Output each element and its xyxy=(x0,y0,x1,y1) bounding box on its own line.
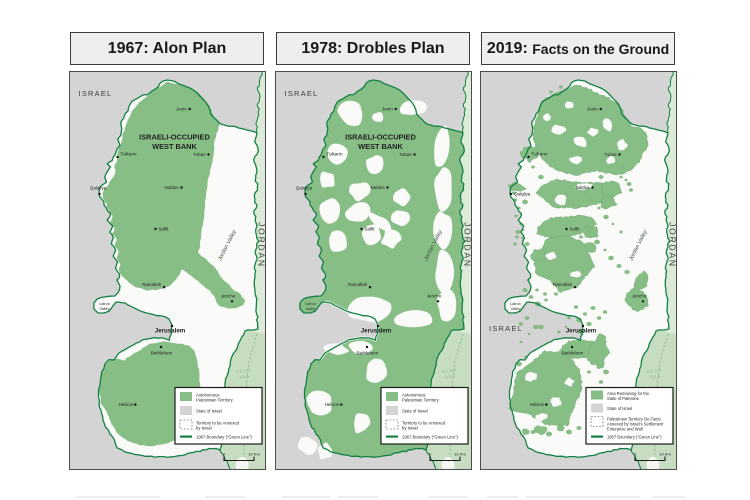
svg-text:Jenin: Jenin xyxy=(382,107,393,112)
svg-text:Latrun: Latrun xyxy=(99,302,110,306)
svg-text:Hebron: Hebron xyxy=(530,402,545,407)
svg-text:Nablus: Nablus xyxy=(165,185,180,190)
svg-text:Ramallah: Ramallah xyxy=(348,282,368,287)
svg-text:ISRAEL: ISRAEL xyxy=(489,324,523,333)
svg-text:Valley: Valley xyxy=(99,307,109,311)
svg-text:Tulkarm: Tulkarm xyxy=(120,151,136,156)
svg-text:Ramallah: Ramallah xyxy=(553,282,573,287)
svg-text:Jericho: Jericho xyxy=(221,293,236,298)
svg-text:Jerusalem: Jerusalem xyxy=(155,328,186,335)
svg-text:Tubas: Tubas xyxy=(399,152,412,157)
svg-text:ISRAEL: ISRAEL xyxy=(285,89,319,98)
svg-text:JORDAN: JORDAN xyxy=(257,222,266,268)
svg-text:Jenin: Jenin xyxy=(176,107,187,112)
svg-text:Tulkarm: Tulkarm xyxy=(531,151,547,156)
svg-text:Valley: Valley xyxy=(510,307,520,311)
svg-text:Jerusalem: Jerusalem xyxy=(566,328,597,335)
svg-text:State of Israel: State of Israel xyxy=(402,409,428,414)
svg-text:Hebron: Hebron xyxy=(119,402,134,407)
svg-text:10 Km: 10 Km xyxy=(454,451,466,456)
svg-text:Salfit: Salfit xyxy=(569,227,580,232)
svg-text:10 Km: 10 Km xyxy=(248,451,260,456)
svg-text:Enterprise and Wall: Enterprise and Wall xyxy=(607,426,643,431)
svg-text:WEST BANK: WEST BANK xyxy=(358,142,403,151)
svg-text:ISRAELI-OCCUPIED: ISRAELI-OCCUPIED xyxy=(345,133,416,142)
svg-text:Bethlehem: Bethlehem xyxy=(562,350,584,355)
svg-text:Bethlehem: Bethlehem xyxy=(151,350,173,355)
svg-text:Jericho: Jericho xyxy=(427,293,442,298)
svg-text:Hebron: Hebron xyxy=(325,402,340,407)
svg-text:WEST BANK: WEST BANK xyxy=(152,142,197,151)
svg-text:Bethlehem: Bethlehem xyxy=(357,350,379,355)
svg-text:Latrun: Latrun xyxy=(305,302,316,306)
svg-text:by Israel: by Israel xyxy=(196,426,212,431)
svg-text:Palestinian Territory: Palestinian Territory xyxy=(402,398,440,403)
svg-text:Tubas: Tubas xyxy=(604,152,617,157)
svg-text:Valley: Valley xyxy=(305,307,315,311)
svg-text:Ramallah: Ramallah xyxy=(142,282,162,287)
svg-text:ISRAELI-OCCUPIED: ISRAELI-OCCUPIED xyxy=(139,133,210,142)
svg-text:Tubas: Tubas xyxy=(193,152,206,157)
svg-text:1967 Boundary (“Green Line”): 1967 Boundary (“Green Line”) xyxy=(402,435,458,440)
svg-text:JORDAN: JORDAN xyxy=(463,222,472,268)
svg-text:Palestinian Territory: Palestinian Territory xyxy=(196,398,234,403)
svg-text:State of Israel: State of Israel xyxy=(196,409,222,414)
svg-text:JORDAN: JORDAN xyxy=(668,222,677,268)
svg-text:State of Israel: State of Israel xyxy=(607,406,632,411)
svg-text:Jerusalem: Jerusalem xyxy=(361,328,392,335)
svg-text:1967 Boundary (“Green Line”): 1967 Boundary (“Green Line”) xyxy=(607,435,662,440)
svg-text:Nablus: Nablus xyxy=(576,185,591,190)
svg-text:Qalqilya: Qalqilya xyxy=(296,185,313,190)
svg-text:Qalqilya: Qalqilya xyxy=(90,185,107,190)
svg-text:Latrun: Latrun xyxy=(510,302,521,306)
svg-text:Salfit: Salfit xyxy=(158,227,169,232)
svg-text:Tulkarm: Tulkarm xyxy=(326,151,342,156)
svg-text:Nablus: Nablus xyxy=(371,185,386,190)
svg-text:10 Km: 10 Km xyxy=(659,451,671,456)
svg-text:Jericho: Jericho xyxy=(632,293,647,298)
svg-text:Salfit: Salfit xyxy=(364,227,375,232)
svg-text:Qalqilya: Qalqilya xyxy=(514,192,531,197)
svg-text:by Israel: by Israel xyxy=(402,426,418,431)
svg-text:1967 Boundary (“Green Line”): 1967 Boundary (“Green Line”) xyxy=(196,435,252,440)
svg-text:ISRAEL: ISRAEL xyxy=(79,89,113,98)
svg-text:Jenin: Jenin xyxy=(587,107,598,112)
svg-text:State of Palestine: State of Palestine xyxy=(607,396,640,401)
